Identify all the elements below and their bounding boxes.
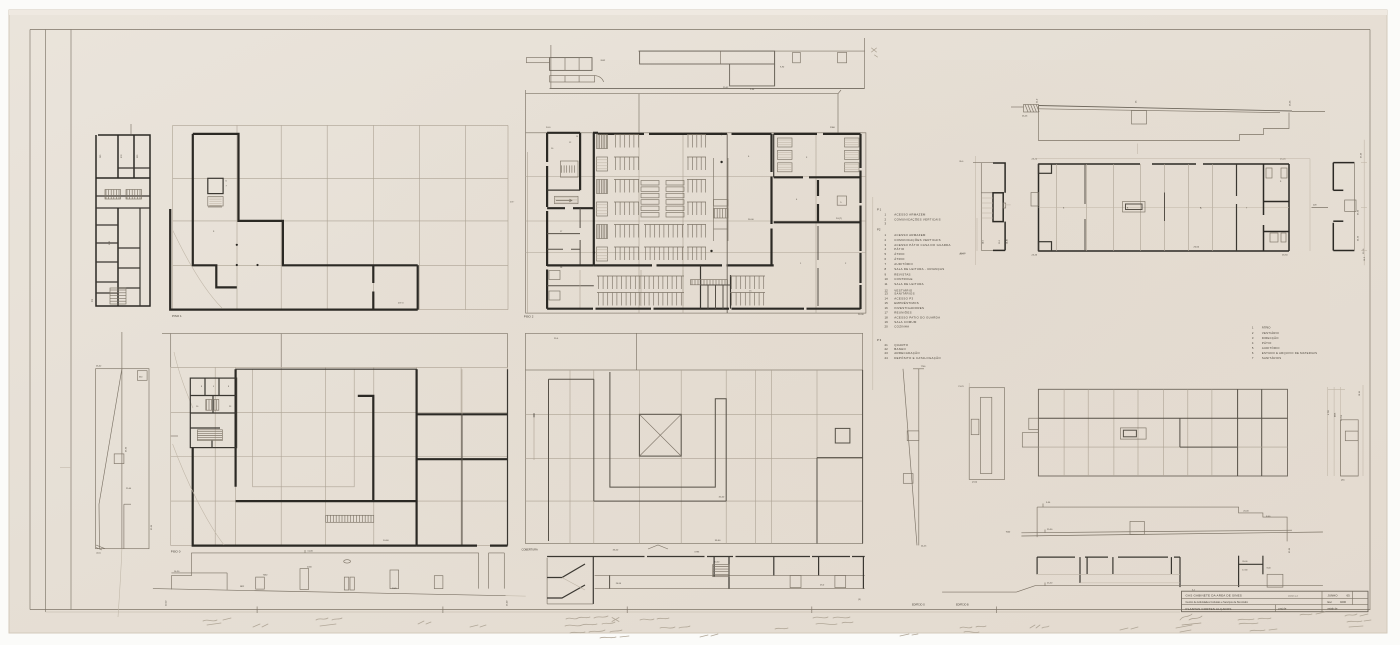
svg-text:P 1: P 1 <box>877 208 882 212</box>
svg-text:ACESSO ARMAZEM: ACESSO ARMAZEM <box>894 213 926 217</box>
svg-text:ARRECADAÇÃO: ARRECADAÇÃO <box>894 350 920 355</box>
svg-text:14-50: 14-50 <box>174 571 180 573</box>
svg-text:25-26: 25-26 <box>1361 152 1363 158</box>
svg-text:24-43: 24-43 <box>1032 255 1038 257</box>
svg-text:10: 10 <box>885 277 889 281</box>
svg-text:DEPÓSITO E CATALOGAÇÃO: DEPÓSITO E CATALOGAÇÃO <box>894 355 941 360</box>
svg-text:SANITÁRIOS: SANITÁRIOS <box>1262 356 1281 360</box>
svg-text:26-90: 26-90 <box>126 446 128 452</box>
svg-text:24: 24 <box>885 356 889 360</box>
svg-text:24-40: 24-40 <box>1007 239 1009 244</box>
svg-text:(3): (3) <box>858 599 861 601</box>
svg-text:estab de: estab de <box>1328 607 1339 611</box>
svg-text:21-70: 21-70 <box>958 386 964 388</box>
svg-text:Centro de Actividades Cultu: Centro de Actividades Culturais e Serviç… <box>1186 601 1249 604</box>
svg-text:33-50: 33-50 <box>613 550 619 552</box>
svg-text:JUNHO: JUNHO <box>1328 594 1339 598</box>
svg-text:19: 19 <box>885 320 889 324</box>
svg-text:26-26: 26-26 <box>1022 116 1028 118</box>
svg-text:25-90: 25-90 <box>1047 529 1053 531</box>
svg-text:10-60: 10-60 <box>383 540 389 542</box>
svg-text:REUNIÕES: REUNIÕES <box>894 310 912 315</box>
svg-text:26-42: 26-42 <box>96 366 102 368</box>
svg-text:24-25: 24-25 <box>921 546 927 548</box>
svg-text:16: 16 <box>885 306 889 310</box>
svg-text:26-00: 26-00 <box>748 219 754 221</box>
svg-text:REVISTAS: REVISTAS <box>894 272 910 276</box>
svg-text:SANITÁRIOS: SANITÁRIOS <box>894 292 915 296</box>
svg-text:20-00: 20-00 <box>1243 511 1249 513</box>
svg-text:PÁTIO: PÁTIO <box>894 247 905 251</box>
svg-text:COBERTURA: COBERTURA <box>522 548 539 552</box>
svg-text:EMPRÉSTIMOS: EMPRÉSTIMOS <box>894 300 919 305</box>
svg-text:COMUNICAÇÕES VERTICAIS: COMUNICAÇÕES VERTICAIS <box>894 237 941 242</box>
svg-text:GAS GABINETE DA AREA DE S: GAS GABINETE DA AREA DE SINES <box>1186 594 1242 598</box>
svg-text:P2: P2 <box>877 228 881 232</box>
svg-text:32-60: 32-60 <box>719 497 725 499</box>
svg-text:25-50: 25-50 <box>1047 582 1053 584</box>
svg-text:24-(7): 24-(7) <box>836 218 842 220</box>
svg-text:ACESSO PATIO DO GUARDA: ACESSO PATIO DO GUARDA <box>894 315 940 319</box>
svg-text:25-00: 25-00 <box>507 600 509 606</box>
svg-text:22-0: 22-0 <box>999 240 1001 244</box>
svg-text:23: 23 <box>885 351 889 355</box>
svg-text:20-40: 20-40 <box>166 600 168 606</box>
svg-text:ÁTRIO: ÁTRIO <box>1262 326 1271 330</box>
svg-text:PÁTIO: PÁTIO <box>1262 341 1272 345</box>
svg-text:6-700: 6-700 <box>1328 410 1330 415</box>
svg-text:INVESTIGADORES: INVESTIGADORES <box>894 306 924 310</box>
svg-text:Esc: Esc <box>1328 600 1333 604</box>
svg-text:VESTIÁRIO: VESTIÁRIO <box>1262 331 1280 335</box>
svg-text:25-26: 25-26 <box>1289 547 1291 553</box>
svg-text:24-50: 24-50 <box>1358 235 1360 241</box>
svg-text:17-63: 17-63 <box>1242 570 1248 572</box>
svg-text:SALA DE LEITURA - CRIANÇAS: SALA DE LEITURA - CRIANÇAS <box>894 267 944 271</box>
svg-text:(26): (26) <box>1341 480 1345 482</box>
svg-text:CONTROLE: CONTROLE <box>894 277 912 281</box>
svg-text:2300: 2300 <box>830 127 836 129</box>
svg-text:11: 11 <box>885 282 888 286</box>
svg-text:24-0: 24-0 <box>546 127 551 129</box>
svg-text:17: 17 <box>885 311 889 315</box>
svg-text:20-00: 20-00 <box>1242 561 1248 563</box>
svg-text:13: 13 <box>885 292 889 296</box>
svg-text:(0-0): (0-0) <box>97 553 101 555</box>
svg-text:PISO 1: PISO 1 <box>172 314 182 318</box>
svg-text:30-50: 30-50 <box>714 562 720 564</box>
svg-text:ACESSO ARMAZEM: ACESSO ARMAZEM <box>894 233 926 237</box>
svg-text:DIRECÇÃO: DIRECÇÃO <box>1262 335 1279 340</box>
svg-text:(21-6): (21-6) <box>972 482 977 484</box>
svg-text:24-0: 24-0 <box>983 240 985 244</box>
svg-text:AUDITÓRIO: AUDITÓRIO <box>1262 345 1280 350</box>
svg-text:26-36: 26-36 <box>1290 100 1292 106</box>
svg-text:COZINHA: COZINHA <box>894 325 909 329</box>
svg-text:26-50: 26-50 <box>1282 255 1288 257</box>
svg-text:0200: 0200 <box>1340 600 1346 604</box>
svg-text:26-00: 26-00 <box>858 314 864 316</box>
svg-text:20: 20 <box>885 325 889 329</box>
svg-text:18: 18 <box>885 315 889 319</box>
svg-text:29-02: 29-02 <box>723 87 729 89</box>
svg-text:P 3: P 3 <box>877 338 882 342</box>
svg-text:SALA DE LEITURA: SALA DE LEITURA <box>894 282 924 286</box>
svg-text:EDIFÍCIO G: EDIFÍCIO G <box>912 603 925 606</box>
svg-text:ESTUDO E ARQUIVO DE MATERIAIS: ESTUDO E ARQUIVO DE MATERIAIS <box>1262 351 1317 355</box>
svg-text:26-60: 26-60 <box>1194 247 1200 249</box>
svg-text:PISO 2: PISO 2 <box>524 315 534 319</box>
svg-text:sector a-1: sector a-1 <box>1288 594 1299 597</box>
svg-text:ÁTRIO: ÁTRIO <box>894 252 905 256</box>
svg-text:65: 65 <box>1347 594 1351 598</box>
svg-text:7293: 7293 <box>694 552 700 554</box>
svg-text:18-36: 18-36 <box>1359 391 1361 396</box>
svg-text:proj de: proj de <box>1278 607 1286 611</box>
svg-text:11-00: 11-00 <box>307 551 313 553</box>
svg-text:4006: 4006 <box>1334 413 1336 417</box>
svg-text:15: 15 <box>885 301 889 305</box>
svg-text:AUDITÓRIO: AUDITÓRIO <box>894 261 913 266</box>
svg-text:EDIFÍCIO B: EDIFÍCIO B <box>956 603 969 606</box>
svg-text:33-60: 33-60 <box>715 540 721 542</box>
svg-text:24-50: 24-50 <box>616 583 622 585</box>
svg-text:26-60: 26-60 <box>1358 209 1360 215</box>
svg-text:24-70: 24-70 <box>959 254 965 256</box>
svg-text:25-40: 25-40 <box>126 488 132 490</box>
svg-text:COMUNICAÇÕES VERTICAIS: COMUNICAÇÕES VERTICAIS <box>894 217 941 222</box>
svg-text:PLANTAS CORTES ALÇADOS: PLANTAS CORTES ALÇADOS <box>1186 607 1232 611</box>
svg-text:ÁTRIO: ÁTRIO <box>894 257 905 261</box>
svg-text:SALA COMUM: SALA COMUM <box>894 320 917 324</box>
svg-text:PISO 0: PISO 0 <box>171 550 181 554</box>
svg-text:25-06: 25-06 <box>151 524 153 530</box>
